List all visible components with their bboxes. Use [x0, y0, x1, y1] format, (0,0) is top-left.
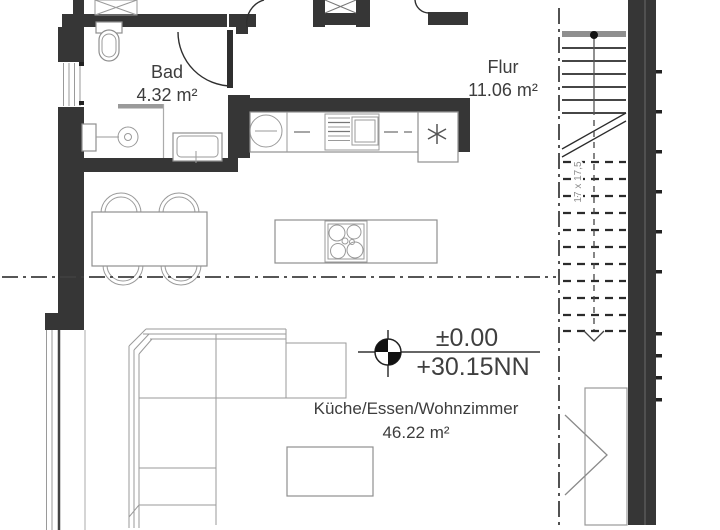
door-bath — [178, 30, 233, 88]
wall-left-below-window — [58, 107, 84, 315]
chair-icon — [103, 265, 143, 285]
room-area-bad: 4.32 m² — [136, 85, 197, 105]
coffee-table — [287, 447, 373, 496]
window-left-upper — [64, 62, 85, 106]
kitchen-island — [275, 220, 437, 263]
stair-break-line — [562, 121, 626, 157]
dining-set — [92, 193, 207, 285]
level-marker-quadrant — [375, 339, 388, 352]
wall-top-right-piece — [229, 14, 256, 27]
wall-top-right-nib — [236, 27, 248, 34]
stair-direction-arrow-icon — [584, 331, 604, 341]
room-name-bad: Bad — [151, 62, 183, 82]
door-flur-right-swing-arc — [415, 0, 429, 13]
kitchen-counter — [250, 112, 458, 162]
elevation-marker: ±0.00 +30.15NN — [358, 324, 540, 381]
wall-top-left-stub — [73, 0, 84, 15]
floor-plan-drawing: 17 x 17,5 ±0.00 +30.15NN Bad 4.32 m² Flu… — [0, 0, 720, 530]
wall-bath-right — [228, 95, 250, 158]
wall-top-horizontal — [62, 14, 227, 27]
fridge-freezer-icon — [418, 112, 458, 162]
door-bath-swing-arc — [178, 32, 232, 86]
floor-plan-canvas: 17 x 17,5 ±0.00 +30.15NN Bad 4.32 m² Flu… — [0, 0, 720, 530]
shower-top-left — [95, 0, 137, 15]
room-area-kueche: 46.22 m² — [382, 423, 449, 442]
floor-drain-center — [125, 134, 132, 141]
chair-icon — [161, 265, 201, 285]
wall-left-above-window — [58, 27, 84, 62]
wall-kitchen-back — [250, 98, 470, 112]
door-bath-leaf — [227, 30, 233, 88]
stair-annotation: 17 x 17,5 — [573, 161, 584, 203]
room-area-flur: 11.06 m² — [468, 80, 538, 100]
chair-icon — [101, 193, 141, 213]
wall-right-exterior — [628, 0, 656, 525]
wall-flur-top — [428, 12, 468, 25]
sofa-chaise — [286, 343, 346, 398]
room-name-kueche: Küche/Essen/Wohnzimmer — [314, 399, 519, 418]
island-outline — [275, 220, 437, 263]
window-tick-top — [79, 62, 84, 66]
window-tick-bottom — [79, 101, 84, 105]
wall-shaft-bottom — [313, 13, 370, 25]
wall-hatch-ticks — [656, 70, 662, 402]
radiator-icon — [82, 124, 96, 151]
sofa — [129, 329, 346, 528]
elevation-datum-text: +30.15NN — [416, 353, 529, 381]
wall-left-end-cap — [45, 313, 84, 330]
elevation-level-text: ±0.00 — [436, 324, 498, 352]
room-name-flur: Flur — [488, 57, 519, 77]
entry-door-panel — [565, 388, 627, 525]
floor-drain-icon — [118, 127, 138, 147]
shaft-cross — [325, 0, 356, 13]
stair-walk-line-start — [590, 31, 598, 39]
dining-table — [92, 212, 207, 266]
level-marker-quadrant — [388, 352, 401, 365]
window-left-lower-glazing — [47, 330, 86, 530]
chair-icon — [159, 193, 199, 213]
staircase: 17 x 17,5 — [562, 31, 626, 341]
